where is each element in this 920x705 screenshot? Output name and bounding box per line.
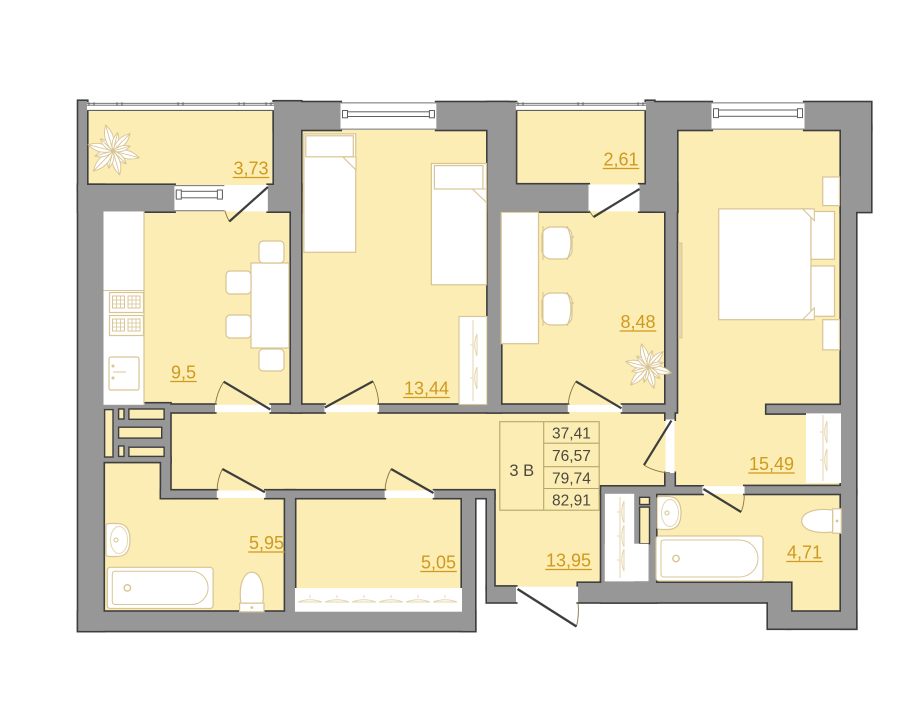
svg-text:5,05: 5,05 bbox=[421, 552, 456, 572]
svg-text:13,44: 13,44 bbox=[404, 378, 449, 398]
svg-text:4,71: 4,71 bbox=[787, 542, 822, 562]
svg-text:37,41: 37,41 bbox=[552, 425, 591, 442]
svg-text:82,91: 82,91 bbox=[552, 492, 591, 509]
svg-text:15,49: 15,49 bbox=[749, 454, 794, 474]
svg-text:76,57: 76,57 bbox=[552, 448, 591, 465]
svg-text:3 В: 3 В bbox=[509, 462, 534, 480]
svg-text:79,74: 79,74 bbox=[552, 471, 591, 488]
svg-text:5,95: 5,95 bbox=[249, 533, 284, 553]
svg-text:3,73: 3,73 bbox=[233, 158, 268, 178]
svg-text:8,48: 8,48 bbox=[620, 312, 655, 332]
svg-text:2,61: 2,61 bbox=[603, 149, 638, 169]
svg-text:9,5: 9,5 bbox=[171, 362, 196, 382]
svg-text:13,95: 13,95 bbox=[546, 550, 591, 570]
